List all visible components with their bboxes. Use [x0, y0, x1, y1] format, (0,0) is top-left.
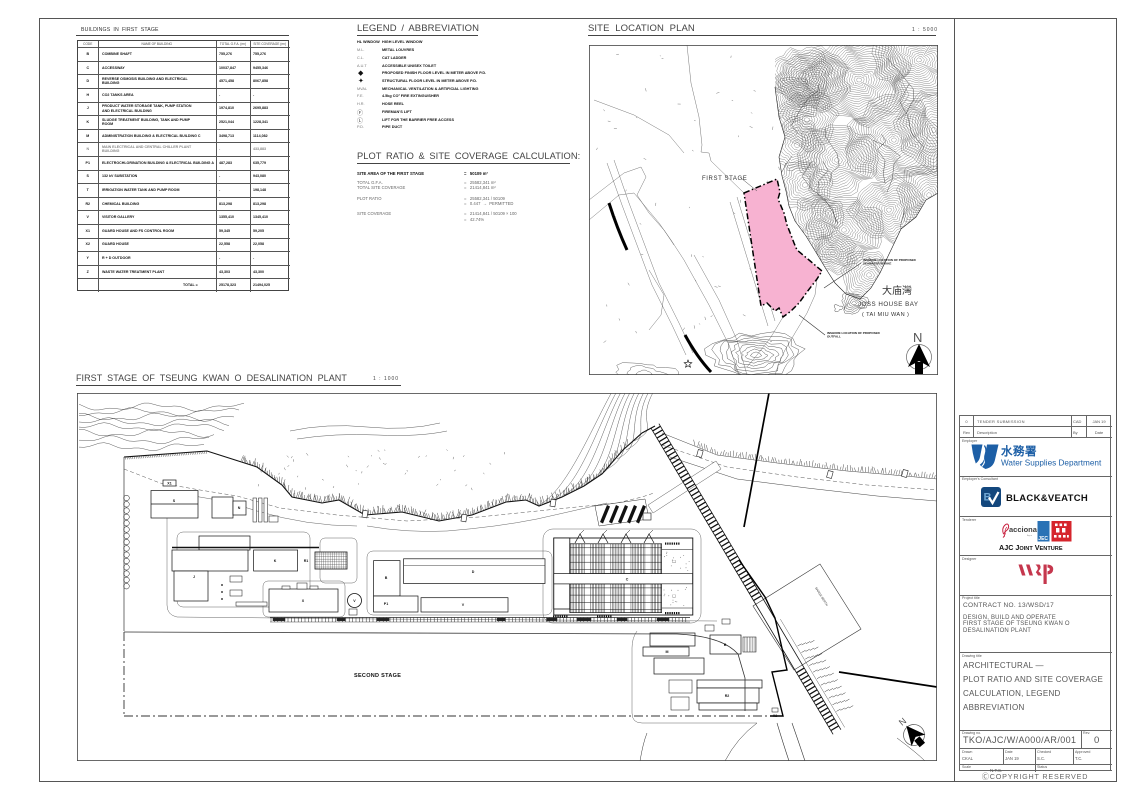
svg-text:N: N — [238, 506, 241, 510]
svg-text:C: C — [626, 578, 629, 582]
svg-text:K: K — [274, 559, 277, 563]
svg-text:JOSS HOUSE BAY: JOSS HOUSE BAY — [858, 301, 919, 308]
svg-text:N: N — [913, 330, 922, 345]
svg-text:AJC JOINT VENTURE: AJC JOINT VENTURE — [999, 543, 1063, 551]
svg-text:( TAI MIU WAN ): ( TAI MIU WAN ) — [862, 312, 909, 318]
svg-text:SEAWATER INTAKE: SEAWATER INTAKE — [863, 262, 891, 266]
svg-text:BLACK&VEATCH: BLACK&VEATCH — [1006, 493, 1088, 504]
svg-text:OUTFALL: OUTFALL — [827, 335, 841, 339]
svg-text:SECOND STAGE: SECOND STAGE — [354, 673, 401, 679]
svg-text:B: B — [385, 576, 388, 580]
svg-text:B: B — [724, 643, 727, 647]
svg-text:Water Supplies Department: Water Supplies Department — [1001, 458, 1102, 467]
svg-text:P1: P1 — [384, 602, 388, 606]
svg-text:D: D — [472, 570, 475, 574]
svg-text:R1: R1 — [304, 559, 309, 563]
svg-text:JEC: JEC — [1038, 535, 1048, 541]
svg-text:R2: R2 — [725, 694, 730, 698]
svg-text:X1: X1 — [167, 482, 171, 486]
svg-text:N: N — [897, 716, 908, 728]
svg-text:FIRST STAGE: FIRST STAGE — [702, 176, 747, 182]
svg-text:大庙灣: 大庙灣 — [882, 284, 912, 297]
svg-text:☐: ☐ — [672, 593, 676, 598]
svg-text:☐: ☐ — [672, 559, 676, 564]
svg-text:acciona: acciona — [1009, 525, 1038, 534]
svg-text:Agua: Agua — [1027, 534, 1033, 537]
svg-text:J: J — [193, 575, 195, 579]
svg-text:水務署: 水務署 — [1001, 444, 1037, 458]
svg-text:X2: X2 — [773, 714, 777, 718]
svg-text:M: M — [666, 650, 669, 654]
